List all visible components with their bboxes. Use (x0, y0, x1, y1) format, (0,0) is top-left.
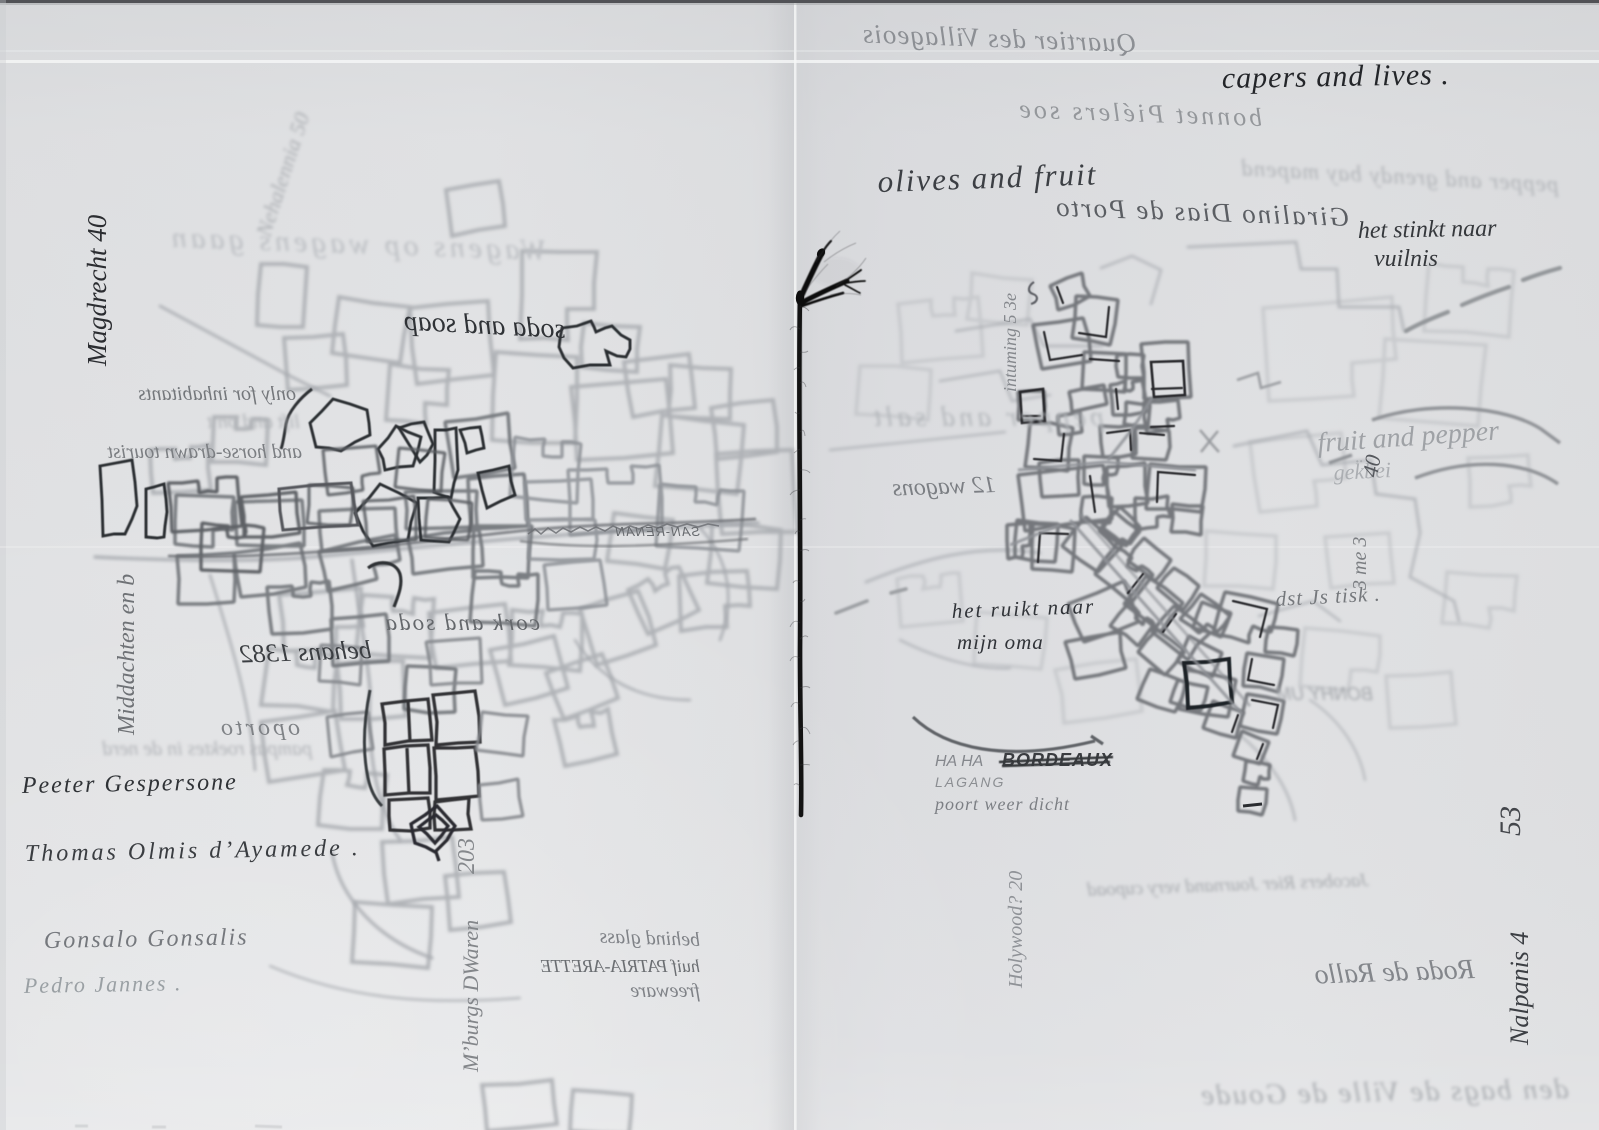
svg-text:cork and soda: cork and soda (384, 610, 540, 635)
svg-text:Middachten en b: Middachten en b (114, 574, 140, 736)
svg-text:freeware: freeware (630, 980, 700, 1002)
svg-text:behind glass: behind glass (599, 925, 700, 951)
svg-text:intuming 5 3e: intuming 5 3e (1000, 293, 1020, 392)
svg-text:mijn oma: mijn oma (957, 630, 1044, 654)
svg-text:het ruikt naar: het ruikt naar (951, 594, 1095, 623)
svg-text:SAN-RENAN: SAN-RENAN (614, 524, 700, 539)
svg-text:40: 40 (1357, 453, 1385, 479)
svg-text:12 wagons: 12 wagons (892, 472, 996, 502)
svg-text:capers and lives .: capers and lives . (1222, 58, 1451, 95)
svg-text:HA HA: HA HA (935, 753, 983, 770)
svg-text:Magdrecht 40: Magdrecht 40 (82, 214, 112, 367)
svg-text:Peeter Gespersone: Peeter Gespersone (21, 769, 238, 799)
svg-text:vuilnis: vuilnis (1374, 246, 1438, 272)
svg-text:het stinkt naar: het stinkt naar (1358, 216, 1498, 244)
svg-text:lift and on t: lift and on t (207, 411, 300, 433)
svg-text:LAGANG: LAGANG (935, 774, 1005, 790)
svg-text:only for inhabitants: only for inhabitants (138, 383, 296, 405)
svg-text:Roda de Rallo: Roda de Rallo (1314, 954, 1476, 991)
svg-text:pepper and salt: pepper and salt (870, 402, 1106, 433)
svg-text:behans 1382: behans 1382 (239, 635, 372, 669)
svg-text:huif PATRIA-ARETTE: huif PATRIA-ARETTE (541, 956, 701, 976)
svg-text:BONHY UM: BONHY UM (1276, 684, 1373, 704)
svg-text:den bags de Ville de Goude: den bags de Ville de Goude (1199, 1073, 1569, 1111)
svg-text:M’burgs DWaren: M’burgs DWaren (458, 920, 483, 1073)
svg-text:203: 203 (454, 838, 480, 874)
svg-text:53: 53 (1494, 806, 1527, 836)
svg-text:Gonsalo Gonsalis: Gonsalo Gonsalis (44, 924, 249, 954)
svg-text:Nalpanis 4: Nalpanis 4 (1505, 932, 1534, 1046)
svg-text:pampas roektes in de nerd: pampas roektes in de nerd (101, 738, 314, 760)
svg-text:3 me 3: 3 me 3 (1349, 537, 1371, 591)
svg-text:Holywood? 20: Holywood? 20 (1005, 871, 1027, 989)
svg-text:poort weer dicht: poort weer dicht (933, 794, 1070, 814)
svg-text:Pedro Jannes .: Pedro Jannes . (23, 970, 183, 998)
svg-text:and horse-drawn tourist: and horse-drawn tourist (107, 441, 302, 463)
